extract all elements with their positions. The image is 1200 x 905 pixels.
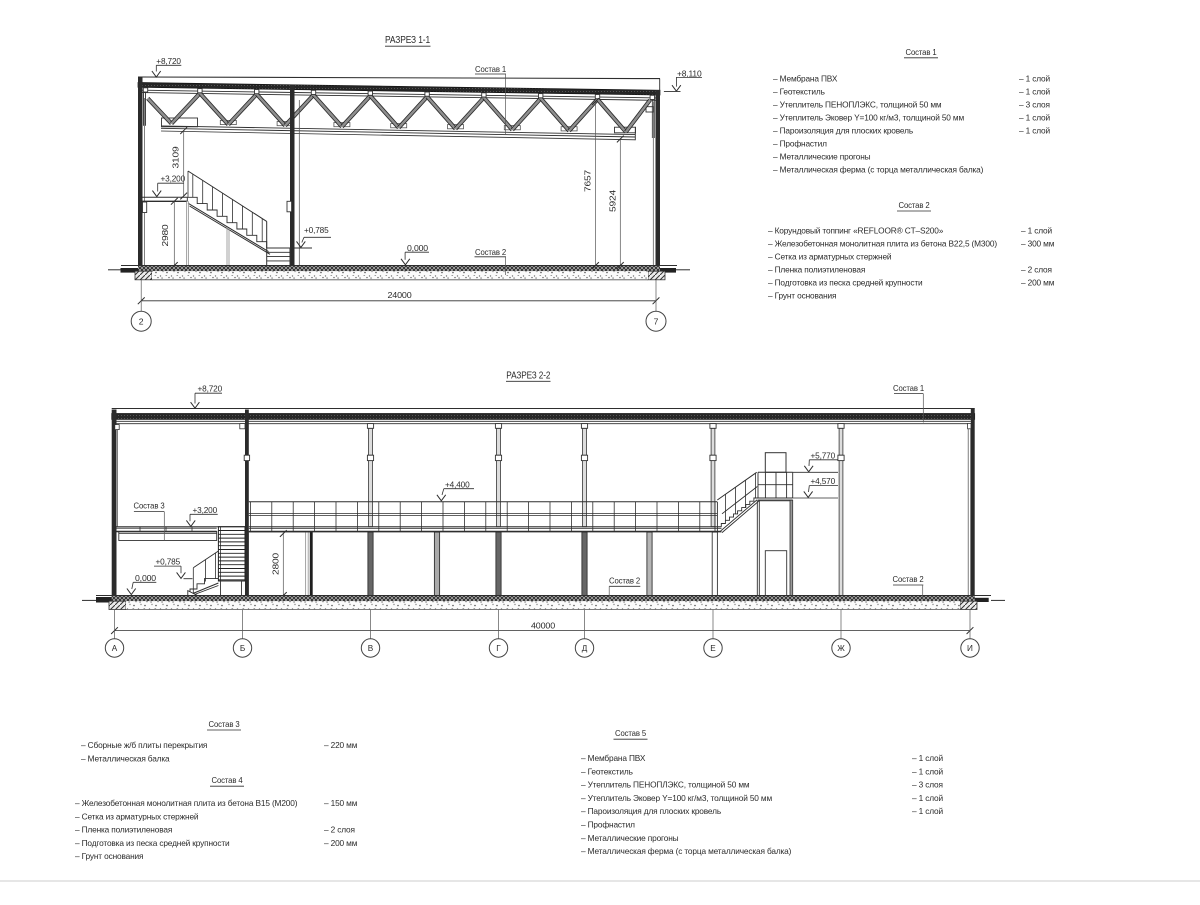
svg-text:+5,770: +5,770 — [811, 451, 836, 461]
svg-text:+4,570: +4,570 — [811, 476, 836, 486]
svg-text:5924: 5924 — [608, 189, 617, 212]
svg-text:Г: Г — [496, 644, 501, 653]
svg-text:– Мембрана ПВХ: – Мембрана ПВХ — [773, 73, 838, 83]
svg-text:– Пленка полиэтиленовая: – Пленка полиэтиленовая — [75, 825, 172, 835]
svg-text:7657: 7657 — [584, 169, 593, 192]
svg-text:– Мембрана ПВХ: – Мембрана ПВХ — [581, 753, 646, 763]
svg-text:Состав 1: Состав 1 — [906, 47, 937, 57]
svg-text:Состав 4: Состав 4 — [212, 775, 243, 785]
svg-text:– 1 слой: – 1 слой — [912, 793, 943, 803]
svg-text:+3,200: +3,200 — [161, 174, 186, 184]
svg-text:7: 7 — [654, 316, 659, 326]
svg-text:РАЗРЕЗ 1-1: РАЗРЕЗ 1-1 — [385, 35, 430, 46]
svg-text:– Геотекстиль: – Геотекстиль — [773, 86, 825, 96]
svg-text:– Профнастил: – Профнастил — [773, 138, 827, 148]
svg-text:– Металлическая балка: – Металлическая балка — [81, 753, 170, 763]
svg-text:Состав 2: Состав 2 — [899, 200, 930, 210]
svg-text:– Пароизоляция для плоских кр: – Пароизоляция для плоских кровель — [581, 806, 721, 816]
svg-text:– Сетка из арматурных стержне: – Сетка из арматурных стержней — [768, 252, 892, 262]
svg-text:24000: 24000 — [388, 290, 413, 300]
svg-text:– Утеплитель ПЕНОПЛЭКС, толщи: – Утеплитель ПЕНОПЛЭКС, толщиной 50 мм — [773, 99, 942, 109]
svg-text:– 1 слой: – 1 слой — [1019, 86, 1050, 96]
svg-text:– Грунт основания: – Грунт основания — [75, 851, 143, 861]
svg-text:– Подготовка из песка средней: – Подготовка из песка средней крупности — [75, 838, 230, 848]
svg-text:2: 2 — [139, 316, 144, 326]
svg-text:Состав 3: Состав 3 — [209, 719, 240, 729]
svg-text:– Утеплитель Эковер Y=100 кг/: – Утеплитель Эковер Y=100 кг/м3, толщино… — [773, 112, 964, 122]
svg-text:3109: 3109 — [171, 146, 180, 169]
svg-text:– Металлические прогоны: – Металлические прогоны — [581, 833, 679, 843]
svg-text:+4,400: +4,400 — [445, 479, 470, 489]
svg-text:Состав 2: Состав 2 — [475, 247, 506, 257]
svg-text:40000: 40000 — [531, 620, 556, 630]
svg-text:А: А — [112, 644, 118, 653]
svg-text:РАЗРЕЗ 2-2: РАЗРЕЗ 2-2 — [506, 370, 550, 381]
svg-text:– 1 слой: – 1 слой — [1019, 125, 1050, 135]
svg-text:+8,110: +8,110 — [677, 68, 702, 78]
svg-text:– Металлические прогоны: – Металлические прогоны — [773, 151, 871, 161]
svg-text:Е: Е — [710, 644, 716, 653]
svg-text:– 3 слоя: – 3 слоя — [912, 780, 943, 790]
svg-text:– 150 мм: – 150 мм — [324, 798, 358, 808]
svg-text:– 3 слоя: – 3 слоя — [1019, 99, 1050, 109]
svg-text:Состав 1: Состав 1 — [475, 64, 506, 74]
svg-text:– Утеплитель ПЕНОПЛЭКС, толщи: – Утеплитель ПЕНОПЛЭКС, толщиной 50 мм — [581, 780, 750, 790]
svg-text:В: В — [368, 644, 374, 653]
svg-text:Д: Д — [582, 644, 588, 653]
svg-text:– Металлическая ферма (с торц: – Металлическая ферма (с торца металличе… — [773, 164, 984, 174]
svg-text:Б: Б — [240, 644, 245, 653]
svg-text:+3,200: +3,200 — [193, 505, 218, 515]
svg-text:– 2 слоя: – 2 слоя — [1021, 265, 1052, 275]
svg-text:– Сетка из арматурных стержне: – Сетка из арматурных стержней — [75, 811, 199, 821]
svg-text:– Утеплитель Эковер Y=100 кг/: – Утеплитель Эковер Y=100 кг/м3, толщино… — [581, 793, 772, 803]
svg-text:– Пароизоляция для плоских кр: – Пароизоляция для плоских кровель — [773, 125, 913, 135]
svg-text:– 1 слой: – 1 слой — [1019, 73, 1050, 83]
svg-text:– 1 слой: – 1 слой — [1019, 112, 1050, 122]
svg-text:– Металлическая ферма (с торц: – Металлическая ферма (с торца металличе… — [581, 846, 792, 856]
svg-text:0,000: 0,000 — [135, 573, 157, 583]
svg-text:– 1 слой: – 1 слой — [912, 766, 943, 776]
svg-text:– 1 слой: – 1 слой — [912, 753, 943, 763]
svg-text:– 200 мм: – 200 мм — [1021, 278, 1055, 288]
svg-text:– Профнастил: – Профнастил — [581, 820, 635, 830]
svg-text:Состав 2: Состав 2 — [893, 574, 924, 584]
svg-text:– 220 мм: – 220 мм — [324, 740, 358, 750]
svg-text:– 2 слоя: – 2 слоя — [324, 825, 355, 835]
svg-text:– Железобетонная монолитная: – Железобетонная монолитная плита из бет… — [75, 798, 298, 808]
svg-text:– 1 слой: – 1 слой — [912, 806, 943, 816]
svg-text:+0,785: +0,785 — [304, 225, 329, 235]
svg-text:2980: 2980 — [161, 224, 170, 247]
svg-text:Состав 1: Состав 1 — [893, 383, 924, 393]
svg-text:– 300 мм: – 300 мм — [1021, 239, 1055, 249]
svg-text:– Железобетонная монолитная: – Железобетонная монолитная плита из бет… — [768, 239, 997, 249]
svg-text:+8,720: +8,720 — [198, 384, 223, 394]
svg-text:+0,785: +0,785 — [156, 557, 181, 567]
svg-text:Состав 2: Состав 2 — [609, 576, 640, 586]
svg-text:2800: 2800 — [271, 552, 280, 575]
svg-text:Состав 5: Состав 5 — [615, 728, 646, 738]
svg-text:– Пленка полиэтиленовая: – Пленка полиэтиленовая — [768, 265, 865, 275]
svg-text:+8,720: +8,720 — [156, 56, 181, 66]
svg-text:– 200 мм: – 200 мм — [324, 838, 358, 848]
svg-text:Ж: Ж — [837, 644, 845, 653]
svg-text:– Корундовый топпинг «REFLOOR: – Корундовый топпинг «REFLOOR® CT–S200» — [768, 226, 944, 236]
svg-text:– Геотекстиль: – Геотекстиль — [581, 766, 633, 776]
svg-text:– Подготовка из песка средней: – Подготовка из песка средней крупности — [768, 278, 923, 288]
svg-text:Состав 3: Состав 3 — [134, 500, 165, 510]
svg-text:– Сборные ж/б плиты перекрыти: – Сборные ж/б плиты перекрытия — [81, 740, 207, 750]
svg-text:– Грунт основания: – Грунт основания — [768, 291, 836, 301]
svg-text:И: И — [967, 644, 973, 653]
svg-text:– 1 слой: – 1 слой — [1021, 226, 1052, 236]
svg-text:0,000: 0,000 — [407, 243, 429, 253]
